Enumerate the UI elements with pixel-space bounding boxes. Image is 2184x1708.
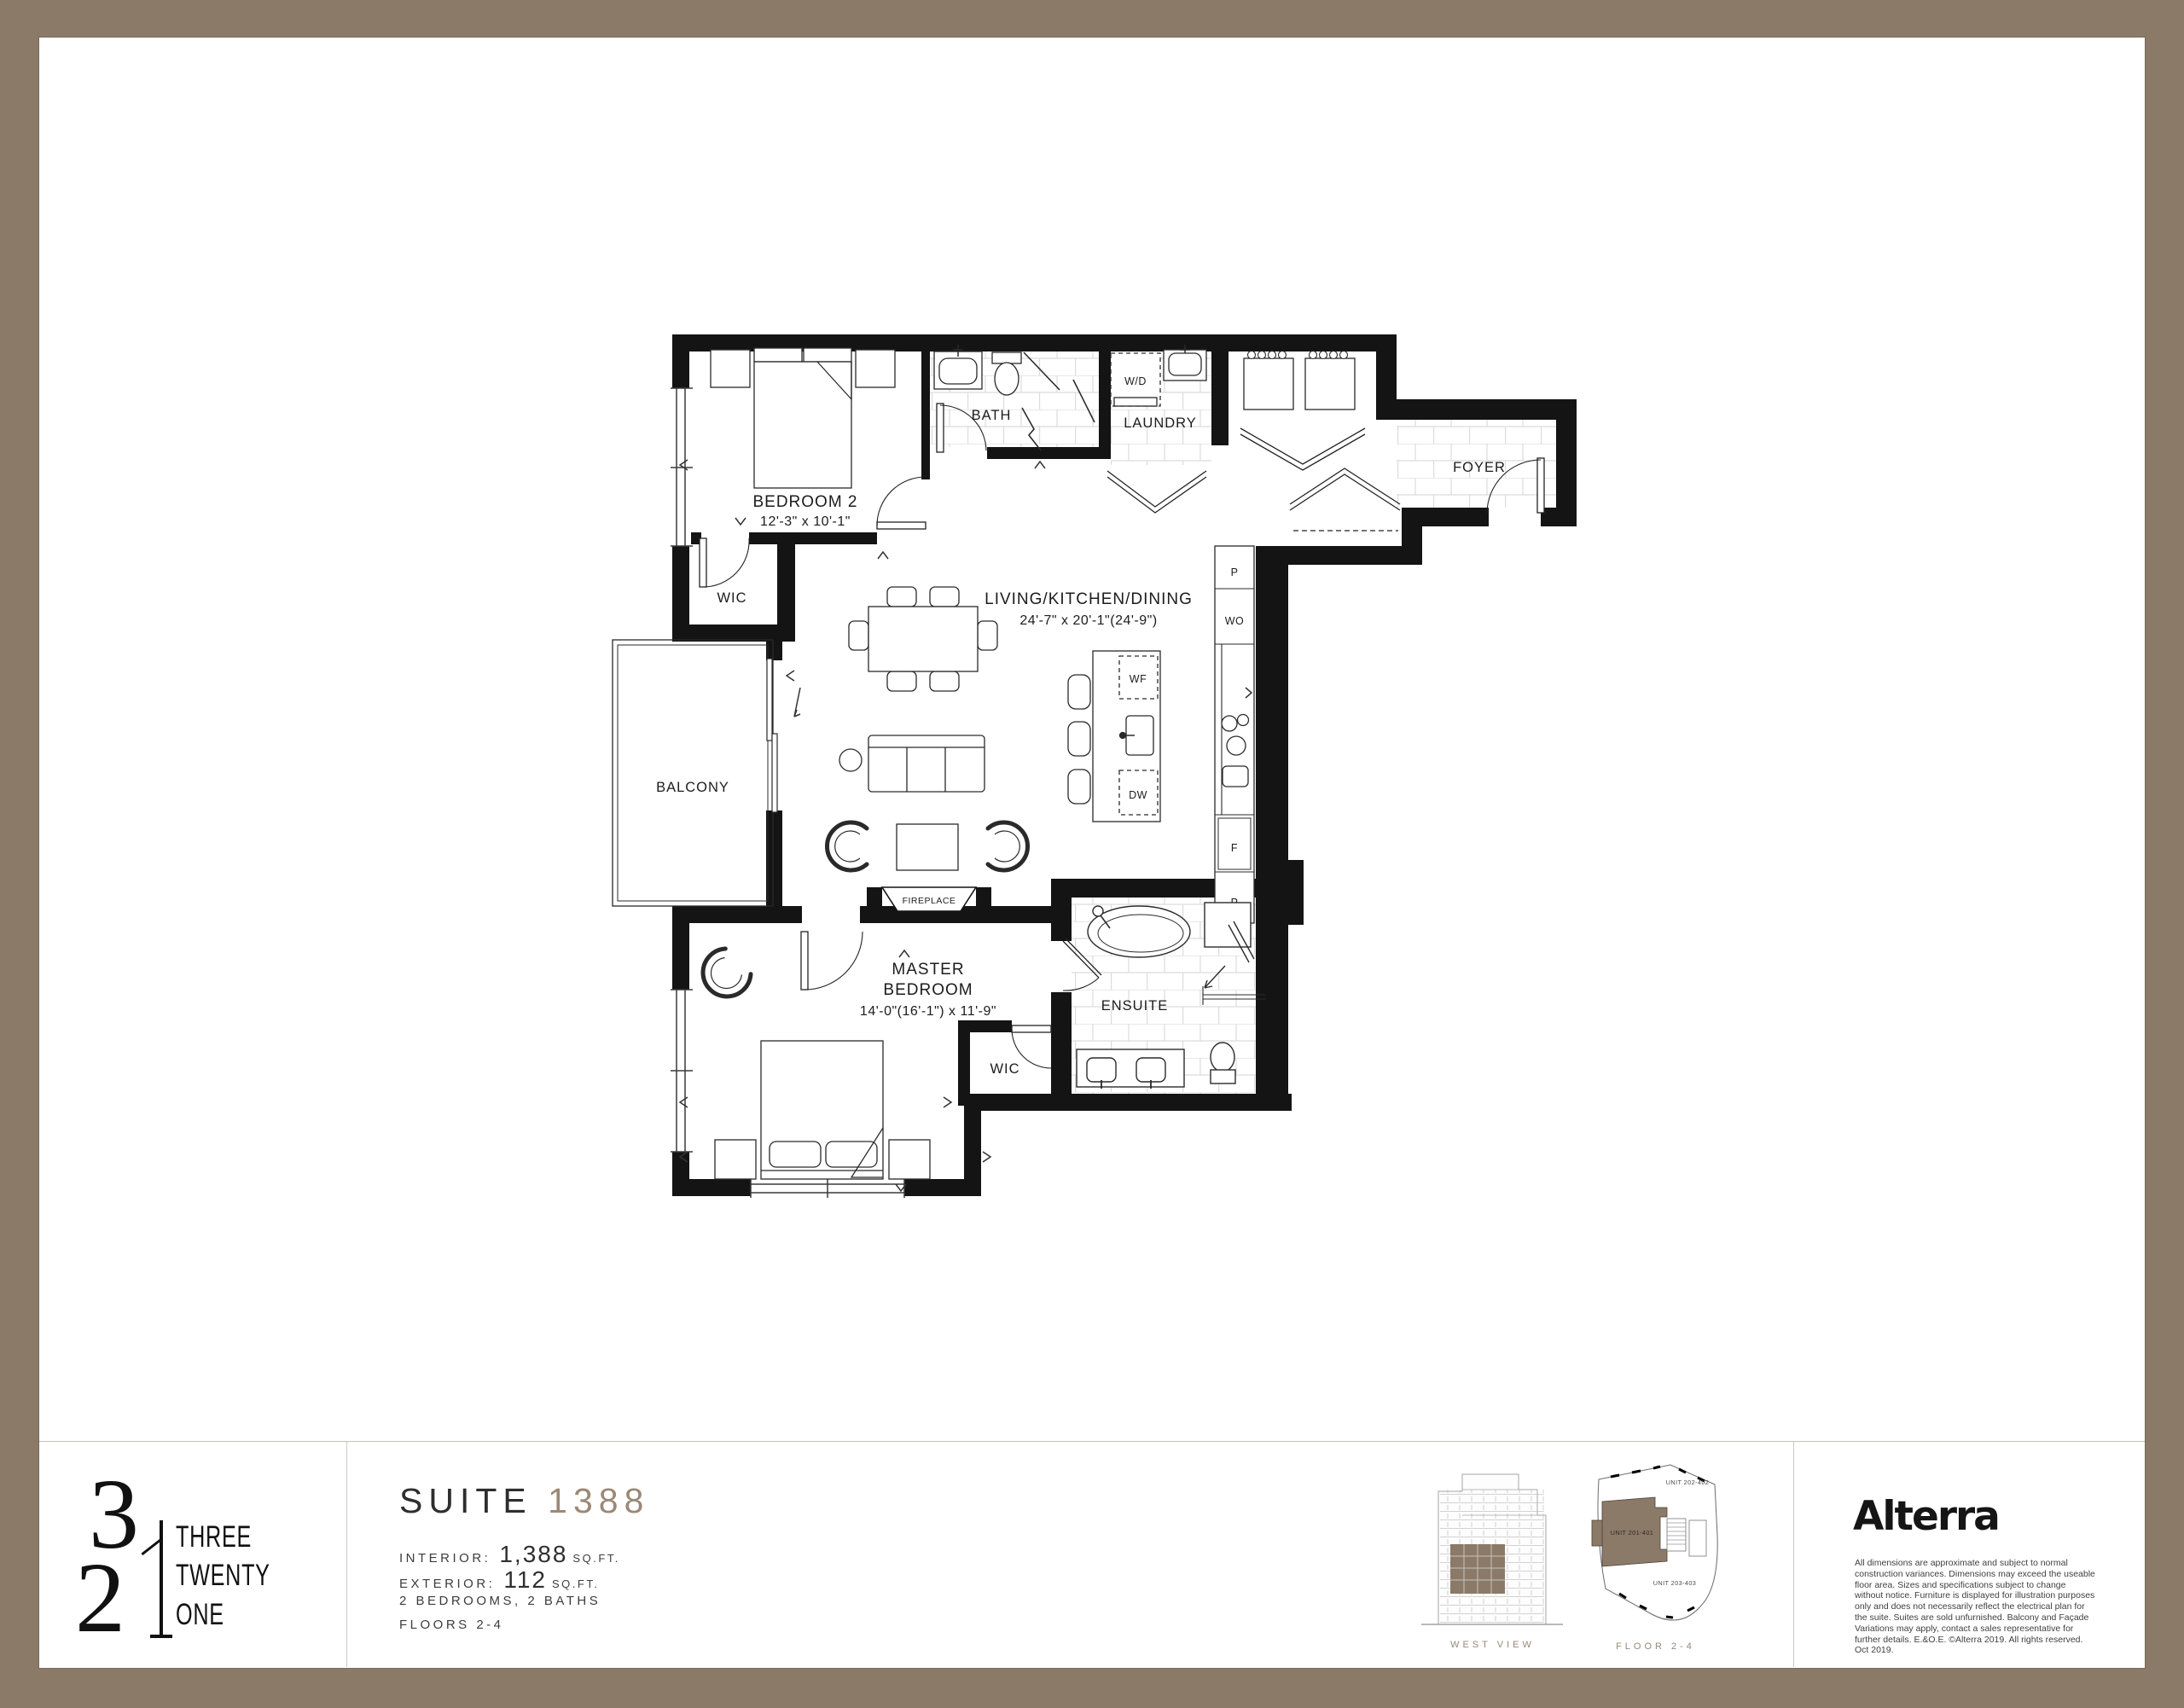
- waterfall-label: WF: [1130, 673, 1147, 685]
- exterior-unit: SQ.FT.: [552, 1577, 599, 1590]
- key-plan-unit-highlight: UNIT 201-401: [1611, 1529, 1654, 1537]
- bedroom2-furniture: [711, 348, 895, 488]
- key-plan: UNIT 202-402 UNIT 201-401 UNIT 203-403: [1585, 1459, 1726, 1642]
- bedroom2-label: BEDROOM 2: [752, 493, 857, 511]
- fridge-label: F: [1231, 842, 1238, 854]
- master-dims: 14'-0"(16'-1") x 11'-9": [860, 1004, 996, 1019]
- key-plan-unit-top: UNIT 202-402: [1666, 1479, 1710, 1486]
- suite-title: SUITE 1388: [399, 1481, 649, 1521]
- brochure-page: BALCONY: [0, 0, 2184, 1708]
- footer-divider-2: [1793, 1442, 1794, 1667]
- laundry-label: LAUNDRY: [1124, 415, 1197, 431]
- logo-word-one: ONE: [176, 1598, 224, 1632]
- west-view-caption: WEST VIEW: [1418, 1640, 1567, 1650]
- key-plan-unit-bottom: UNIT 203-403: [1653, 1579, 1697, 1587]
- suite-label: SUITE: [399, 1481, 532, 1520]
- living-furniture: [827, 587, 1027, 870]
- interior-label: INTERIOR:: [399, 1551, 491, 1566]
- footer-divider-top: [39, 1441, 2145, 1442]
- dishwasher-label: DW: [1129, 789, 1147, 801]
- suite-number: 1388: [548, 1481, 649, 1520]
- master-furniture: [693, 944, 930, 1179]
- rooms-text: 2 BEDROOMS, 2 BATHS: [399, 1594, 601, 1608]
- building-logo-321: 3 2 THREE TWENTY ONE: [75, 1469, 357, 1661]
- floors-line: FLOORS 2-4: [399, 1618, 504, 1632]
- logo-digit-2: 2: [75, 1548, 125, 1648]
- washer-dryer-label: W/D: [1124, 375, 1147, 387]
- disclaimer-text: All dimensions are approximate and subje…: [1855, 1558, 2095, 1656]
- fireplace-label: FIREPLACE: [903, 896, 956, 906]
- floor-plan: BALCONY: [597, 316, 1595, 1220]
- living-dims: 24'-7" x 20'-1"(24'-9"): [1019, 613, 1157, 628]
- hall-closets: [1244, 351, 1355, 410]
- wic2-label: WIC: [717, 590, 746, 606]
- exterior-line: EXTERIOR: 112 SQ.FT.: [399, 1566, 599, 1594]
- balcony-label: BALCONY: [656, 780, 729, 795]
- interior-value: 1,388: [499, 1541, 567, 1568]
- rooms-line: 2 BEDROOMS, 2 BATHS: [399, 1594, 601, 1608]
- bedroom2-dims: 12'-3" x 10'-1": [760, 514, 851, 529]
- logo-digit-1-base: [150, 1635, 172, 1638]
- interior-unit: SQ.FT.: [572, 1552, 619, 1565]
- key-plan-caption: FLOOR 2-4: [1585, 1641, 1726, 1652]
- kitchen-appliances: [1215, 546, 1254, 923]
- ensuite-label: ENSUITE: [1101, 998, 1169, 1014]
- wall-oven-label: WO: [1225, 615, 1245, 627]
- logo-word-twenty: TWENTY: [176, 1559, 270, 1593]
- foyer-label: FOYER: [1453, 460, 1506, 475]
- interior-line: INTERIOR: 1,388 SQ.FT.: [399, 1541, 620, 1568]
- master-label-1: MASTER: [892, 961, 964, 979]
- balcony: [613, 640, 777, 906]
- logo-word-three: THREE: [176, 1520, 252, 1554]
- wic-master-label: WIC: [990, 1061, 1019, 1077]
- alterra-logo: Alterra: [1853, 1493, 1999, 1540]
- living-label: LIVING/KITCHEN/DINING: [985, 590, 1193, 608]
- exterior-label: EXTERIOR:: [399, 1577, 495, 1591]
- west-view-elevation: [1418, 1461, 1567, 1631]
- exterior-value: 112: [503, 1566, 547, 1594]
- floors-text: FLOORS 2-4: [399, 1618, 504, 1632]
- bath-label: BATH: [972, 408, 1012, 423]
- master-label-2: BEDROOM: [883, 981, 973, 999]
- pantry-top-label: P: [1231, 566, 1239, 578]
